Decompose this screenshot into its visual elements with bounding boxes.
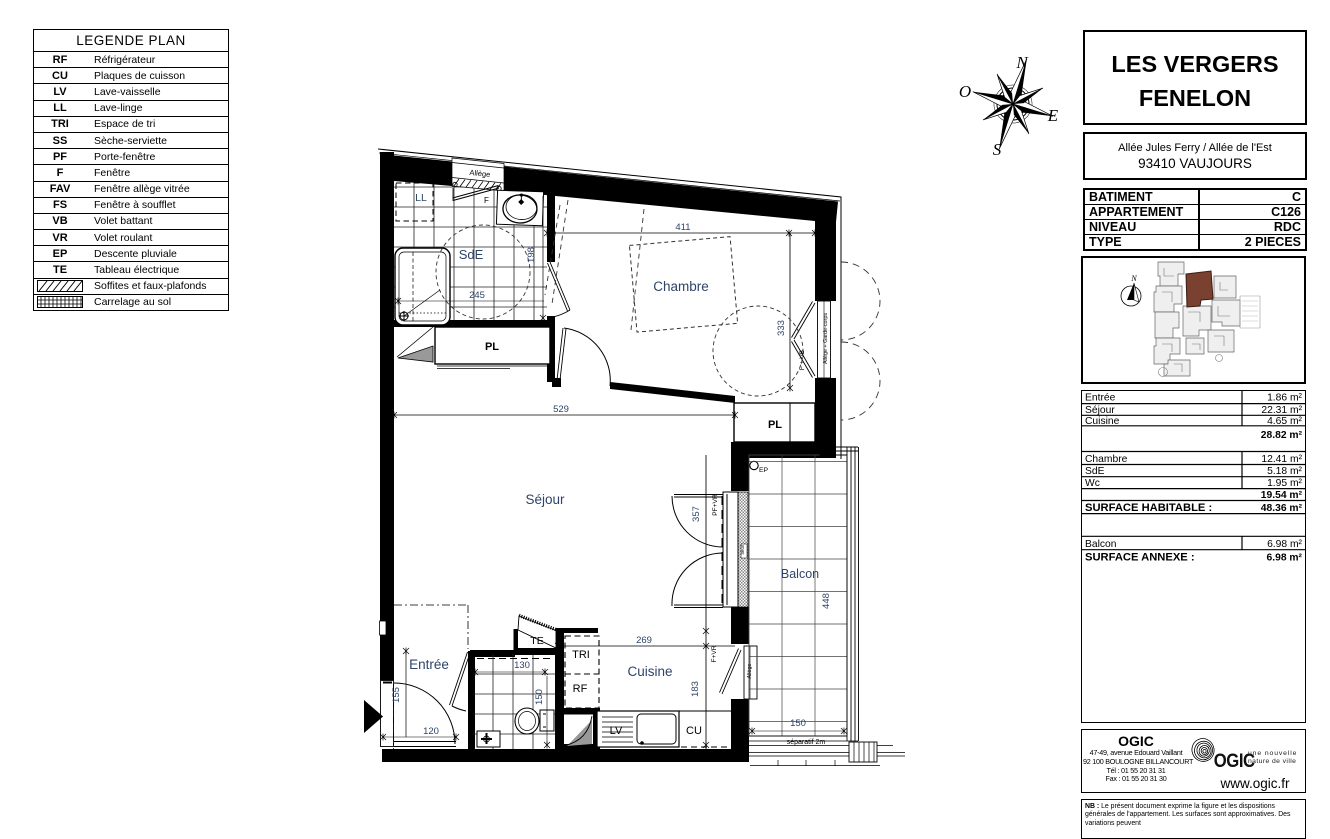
svg-text:Seuil: Seuil	[740, 545, 745, 554]
svg-text:183: 183	[690, 681, 701, 697]
svg-text:séparatif 2m: séparatif 2m	[787, 739, 826, 746]
svg-text:E: E	[1047, 106, 1059, 125]
svg-text:120: 120	[423, 726, 439, 737]
svg-text:Balcon: Balcon	[781, 567, 819, 581]
svg-text:155: 155	[391, 687, 402, 703]
svg-text:N: N	[1130, 274, 1137, 283]
svg-text:F+VR: F+VR	[711, 645, 718, 662]
svg-text:LV: LV	[610, 725, 623, 737]
svg-text:PF+VR: PF+VR	[712, 494, 719, 516]
svg-text:SdE: SdE	[459, 247, 484, 262]
svg-text:198: 198	[526, 247, 537, 263]
svg-text:TE: TE	[530, 635, 543, 647]
svg-text:Allège: Allège	[747, 664, 753, 679]
svg-text:PL: PL	[485, 341, 499, 353]
svg-text:448: 448	[821, 593, 832, 609]
svg-text:N: N	[1015, 53, 1029, 72]
svg-text:RF: RF	[573, 683, 588, 695]
svg-text:S: S	[993, 140, 1002, 159]
svg-text:130: 130	[514, 660, 530, 671]
svg-text:150: 150	[790, 718, 806, 729]
svg-text:LL: LL	[415, 192, 427, 204]
svg-text:PL: PL	[768, 419, 782, 431]
svg-text:TRI: TRI	[572, 649, 590, 661]
svg-text:245: 245	[469, 290, 485, 301]
svg-text:529: 529	[553, 404, 569, 415]
svg-text:Cuisine: Cuisine	[627, 664, 672, 679]
svg-text:EP: EP	[759, 467, 769, 474]
svg-text:357: 357	[691, 506, 702, 522]
svg-text:Entrée: Entrée	[409, 657, 449, 672]
svg-text:150: 150	[534, 689, 545, 705]
svg-text:411: 411	[675, 222, 690, 233]
svg-text:F: F	[484, 196, 489, 205]
svg-text:Chambre: Chambre	[653, 279, 709, 294]
svg-text:O: O	[959, 82, 971, 101]
svg-text:333: 333	[776, 320, 787, 336]
svg-text:Séjour: Séjour	[525, 492, 565, 507]
svg-text:269: 269	[636, 635, 652, 646]
svg-text:Allège + Garde-corps: Allège + Garde-corps	[823, 313, 829, 364]
svg-text:CU: CU	[686, 725, 702, 737]
